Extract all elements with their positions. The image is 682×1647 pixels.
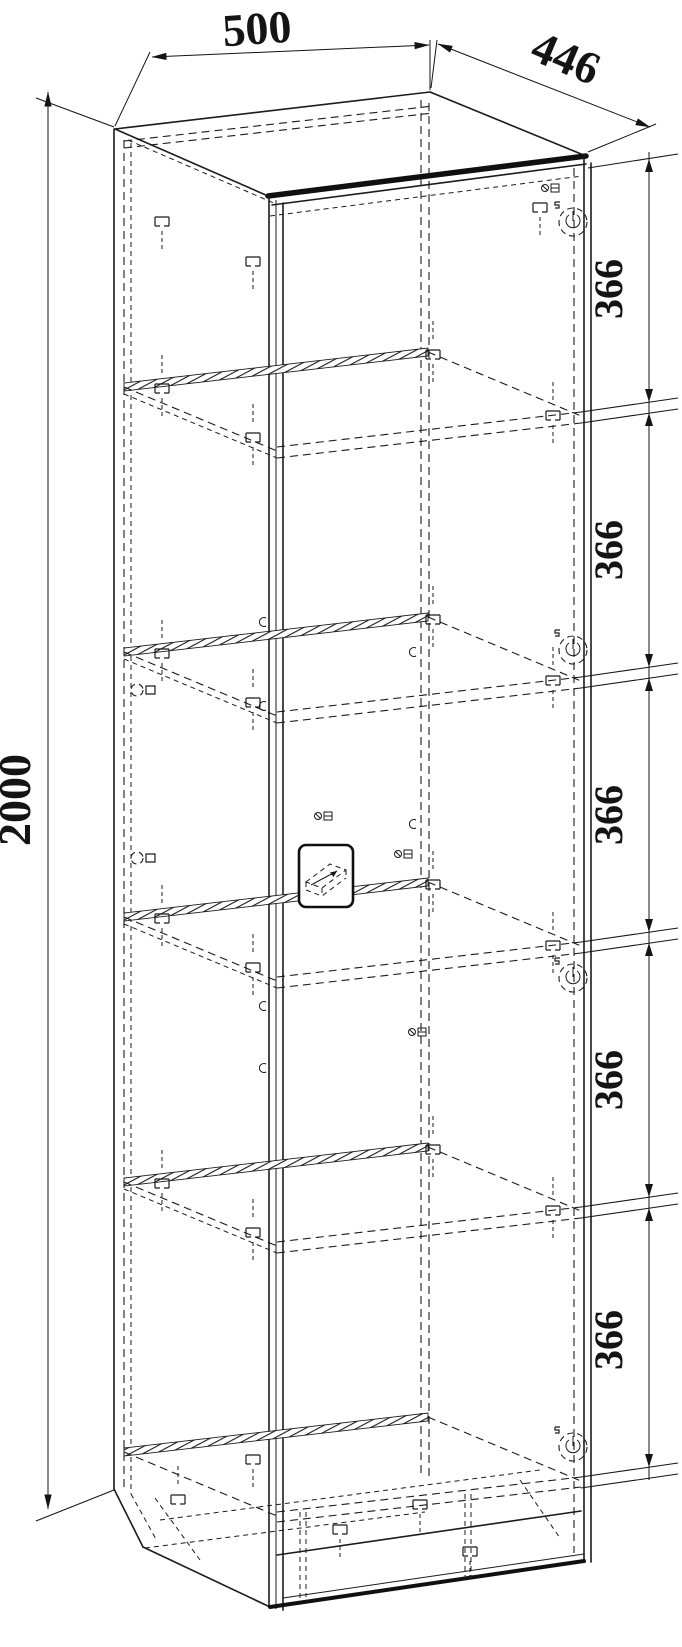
screw-icon: [395, 850, 413, 858]
shelf-1: [124, 321, 581, 467]
cabinet-assembly-drawing: 500 446 2000: [0, 0, 682, 1647]
dimension-spacing-label-1: 366: [586, 259, 631, 319]
dimension-width: 500: [115, 1, 430, 126]
dimension-height: 2000: [0, 92, 114, 1521]
back-panel-edge: [421, 100, 429, 1480]
shelf-2: [124, 586, 581, 732]
hinge-plate-icon: [131, 684, 155, 696]
dimension-depth: 446: [431, 21, 656, 152]
drawing-canvas: 500 446 2000: [0, 0, 682, 1647]
dimension-width-label: 500: [221, 1, 293, 57]
shelf-4: [124, 1116, 581, 1262]
cam-lock-icon: [555, 958, 587, 992]
top-panel: [115, 92, 586, 216]
bottom-panel: [124, 1413, 581, 1581]
cam-lock-icon: [555, 1427, 587, 1461]
screw-icon: [409, 1028, 427, 1036]
dimension-height-label: 2000: [0, 754, 40, 846]
hinge-plate-icon: [131, 852, 155, 864]
dimension-spacing-label-4: 366: [586, 1050, 631, 1110]
cam-lock-icon: [555, 202, 587, 236]
dimension-depth-label: 446: [524, 21, 607, 95]
misc-fittings: [131, 202, 587, 1461]
left-side-panel: [114, 129, 270, 1607]
plinth: [145, 1470, 584, 1607]
cam-lock-icon: [555, 630, 587, 664]
dimension-shelf-spacing-chain: 366 366 366 366 366: [581, 152, 678, 1488]
connector-detail-callout: [299, 845, 353, 907]
dimension-spacing-label-2: 366: [586, 520, 631, 580]
screw-icon: [315, 812, 333, 820]
top-fittings: [155, 184, 559, 291]
dimension-spacing-label-3: 366: [586, 785, 631, 845]
dimension-spacing-label-5: 366: [586, 1310, 631, 1370]
